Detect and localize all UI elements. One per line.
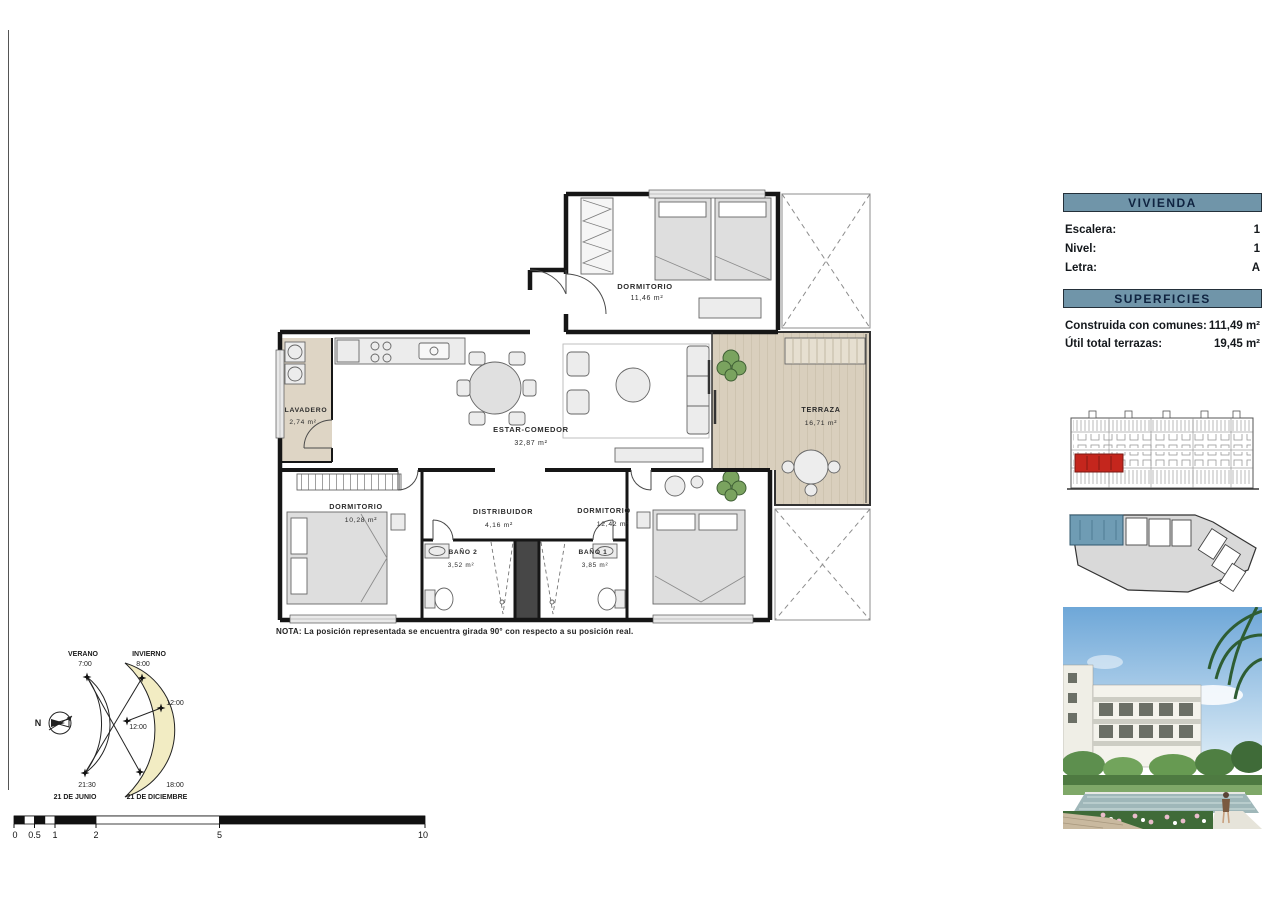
verano-sunrise-time: 7:00 xyxy=(78,661,92,668)
field-nivel: Nivel: 1 xyxy=(1063,240,1262,259)
highlighted-unit-blue xyxy=(1070,515,1123,545)
room-area: 32,87 m² xyxy=(514,440,547,447)
scale-label-2: 2 xyxy=(93,830,98,840)
room-label: TERRAZA xyxy=(801,405,840,414)
field-label: Letra: xyxy=(1065,259,1097,278)
info-panel: VIVIENDA Escalera: 1 Nivel: 1 Letra: A S… xyxy=(1063,193,1262,353)
field-value: 1 xyxy=(1254,240,1260,259)
area-label: Construida con comunes: xyxy=(1065,317,1207,335)
room-area: 3,52 m² xyxy=(448,562,475,569)
field-value: A xyxy=(1252,259,1260,278)
invierno-sunset-time: 18:00 xyxy=(166,782,184,789)
area-value: 111,49 m² xyxy=(1209,317,1260,335)
field-escalera: Escalera: 1 xyxy=(1063,221,1262,240)
room-label: LAVADERO xyxy=(285,407,328,414)
site-plan xyxy=(1066,508,1262,600)
verano-label: VERANO xyxy=(68,651,99,658)
area-value: 19,45 m² xyxy=(1214,335,1260,353)
room-label: DORMITORIO xyxy=(617,282,673,291)
invierno-date-label: 21 DE DICIEMBRE xyxy=(127,794,188,801)
area-terrazas: Útil total terrazas: 19,45 m² xyxy=(1063,335,1262,353)
scale-label-0: 0 xyxy=(12,830,17,840)
sun-path-diagram: N VERANO 7:00 INVIERNO 8:00 12:00 12:00 … xyxy=(25,645,210,805)
verano-date-label: 21 DE JUNIO xyxy=(54,794,97,801)
invierno-label: INVIERNO xyxy=(132,651,166,658)
room-area: 2,74 m² xyxy=(289,419,316,426)
scale-label-1: 1 xyxy=(52,830,57,840)
room-area: 12,42 m² xyxy=(597,521,629,528)
room-label: BAÑO 1 xyxy=(578,547,607,556)
north-label: N xyxy=(35,718,42,728)
services-shaft xyxy=(515,540,539,620)
room-label: DISTRIBUIDOR xyxy=(473,507,533,516)
floor-plan-drawing: DORMITORIO 11,46 m² LAVADERO 2,74 m² EST… xyxy=(263,182,893,632)
plan-note: NOTA: La posición representada se encuen… xyxy=(276,627,633,636)
area-construida: Construida con comunes: 111,49 m² xyxy=(1063,317,1262,335)
north-compass-icon xyxy=(49,712,72,734)
invierno-sunrise-time: 8:00 xyxy=(136,661,150,668)
bedroom-top-furniture xyxy=(581,198,771,318)
plan-sheet: DORMITORIO 11,46 m² LAVADERO 2,74 m² EST… xyxy=(0,0,1280,906)
verano-sunset-time: 21:30 xyxy=(78,782,96,789)
vivienda-fields: Escalera: 1 Nivel: 1 Letra: A xyxy=(1063,221,1262,278)
kitchen-counter xyxy=(335,338,465,364)
summer-crescent xyxy=(85,677,110,773)
elevation-chimneys xyxy=(1089,411,1240,418)
room-label: DORMITORIO xyxy=(329,502,383,511)
noon-verano-label: 12:00 xyxy=(129,724,147,731)
dining-table xyxy=(457,352,536,425)
room-area: 3,85 m² xyxy=(582,562,609,569)
superficies-fields: Construida con comunes: 111,49 m² Útil t… xyxy=(1063,317,1262,353)
photo-walkway xyxy=(1211,811,1262,829)
scale-label-5: 5 xyxy=(217,830,222,840)
building-photo xyxy=(1063,607,1262,829)
sheet-border-line xyxy=(8,30,9,790)
superficies-header: SUPERFICIES xyxy=(1063,289,1262,308)
noon-invierno-label: 12:00 xyxy=(166,700,184,707)
room-label: BAÑO 2 xyxy=(448,547,477,556)
field-label: Escalera: xyxy=(1065,221,1116,240)
scale-bar: 0 0.5 1 2 5 10 xyxy=(12,814,432,840)
room-area: 11,46 m² xyxy=(631,295,664,302)
scale-segments xyxy=(14,816,425,824)
room-label: ESTAR-COMEDOR xyxy=(493,425,569,434)
scale-label-05: 0.5 xyxy=(28,830,41,840)
building-elevation xyxy=(1063,398,1263,500)
field-value: 1 xyxy=(1254,221,1260,240)
scale-label-10: 10 xyxy=(418,830,428,840)
photo-pool xyxy=(1073,793,1259,813)
room-area: 10,28 m² xyxy=(345,517,377,524)
field-label: Nivel: xyxy=(1065,240,1096,259)
room-area: 16,71 m² xyxy=(805,420,837,427)
bedroom-left-furniture xyxy=(287,474,405,604)
sofa-group xyxy=(563,344,709,462)
room-area: 4,16 m² xyxy=(485,522,513,529)
area-label: Útil total terrazas: xyxy=(1065,335,1162,353)
room-label: DORMITORIO xyxy=(577,506,631,515)
field-letra: Letra: A xyxy=(1063,259,1262,278)
vivienda-header: VIVIENDA xyxy=(1063,193,1262,212)
